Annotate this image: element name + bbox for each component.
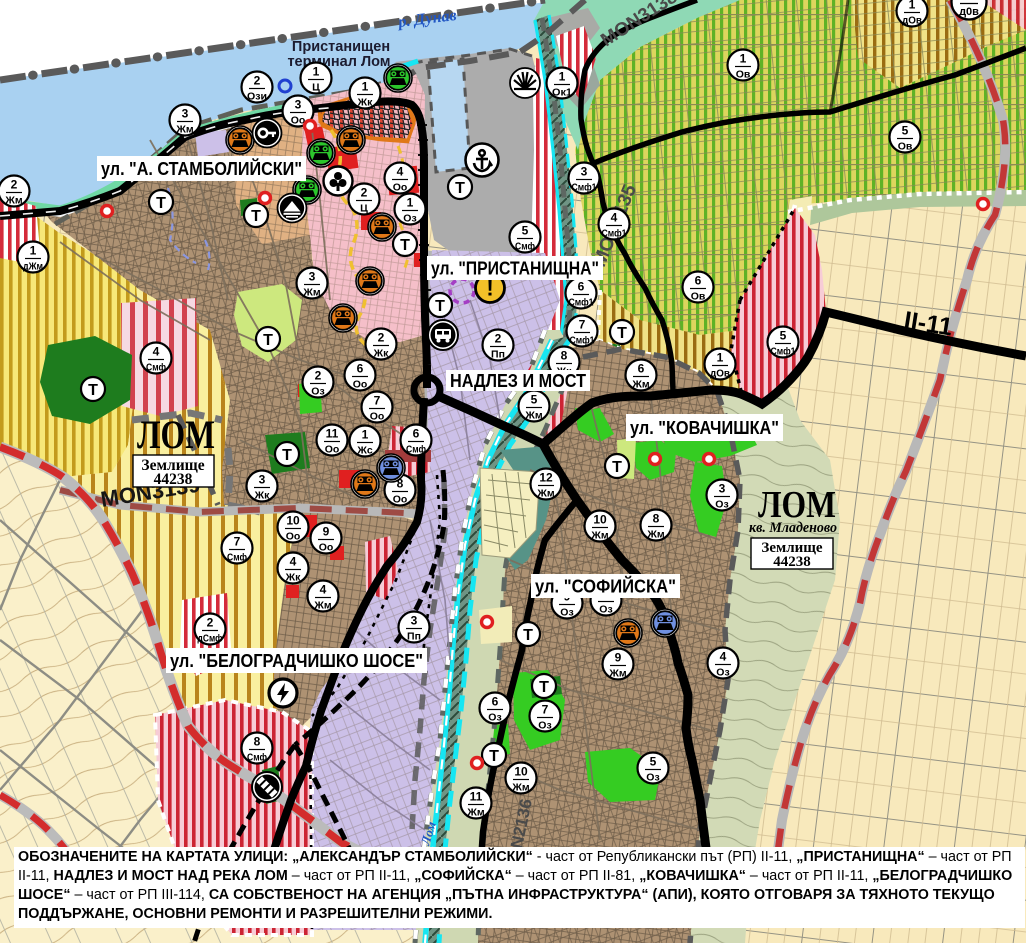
svg-text:Жм: Жм (590, 530, 608, 542)
svg-text:Оз: Оз (311, 386, 324, 398)
svg-text:2: 2 (495, 332, 502, 346)
svg-text:6: 6 (357, 362, 364, 376)
svg-text:1: 1 (362, 80, 369, 94)
svg-text:Пп: Пп (407, 631, 421, 643)
svg-text:7: 7 (579, 318, 586, 332)
svg-text:7: 7 (374, 394, 381, 408)
svg-text:Смф1: Смф1 (569, 297, 594, 309)
svg-text:9: 9 (323, 525, 330, 539)
svg-text:Оо: Оо (393, 494, 408, 506)
svg-text:дОв: дОв (902, 15, 923, 27)
svg-text:44238: 44238 (154, 471, 193, 488)
svg-text:T: T (523, 627, 533, 644)
svg-text:10: 10 (514, 765, 528, 779)
svg-text:Ов: Ов (736, 69, 751, 81)
svg-text:4: 4 (611, 211, 618, 225)
svg-text:Оо: Оо (353, 379, 368, 391)
svg-text:5: 5 (531, 393, 538, 407)
svg-text:T: T (435, 298, 445, 315)
svg-text:3: 3 (182, 107, 189, 121)
svg-text:Смф: Смф (227, 552, 247, 564)
svg-text:T: T (400, 237, 410, 254)
svg-text:Оо: Оо (286, 531, 301, 543)
svg-text:Оз: Оз (538, 720, 551, 732)
svg-text:Ц: Ц (312, 82, 320, 94)
svg-text:дЖм: дЖм (23, 261, 43, 273)
svg-text:Жм: Жм (608, 668, 626, 680)
svg-text:ул. "ПРИСТАНИЩНА": ул. "ПРИСТАНИЩНА" (431, 257, 599, 278)
svg-text:Смф: Смф (146, 362, 166, 374)
svg-text:10: 10 (286, 514, 300, 528)
svg-text:д0в: д0в (959, 6, 979, 18)
svg-text:Оо: Оо (319, 542, 334, 554)
svg-text:2: 2 (11, 178, 18, 192)
svg-text:Жм: Жм (302, 287, 320, 299)
svg-text:6: 6 (578, 280, 585, 294)
svg-text:T: T (455, 180, 465, 197)
svg-text:Ок1: Ок1 (552, 87, 572, 99)
svg-text:Жм: Жм (524, 410, 542, 422)
svg-text:Жм: Жм (466, 807, 484, 819)
svg-text:T: T (263, 332, 273, 349)
svg-text:2: 2 (254, 74, 261, 88)
svg-text:12: 12 (539, 471, 553, 485)
svg-text:4: 4 (290, 555, 297, 569)
svg-text:6: 6 (413, 427, 420, 441)
svg-text:5: 5 (650, 755, 657, 769)
svg-text:Жк: Жк (254, 490, 270, 502)
svg-text:5: 5 (780, 329, 787, 343)
svg-text:НАДЛЕЗ И МОСТ: НАДЛЕЗ И МОСТ (450, 371, 586, 391)
svg-text:кв. Младеново: кв. Младеново (749, 520, 837, 536)
svg-text:4: 4 (320, 583, 327, 597)
svg-text:Жм: Жм (313, 600, 331, 612)
svg-text:Оз: Оз (599, 604, 612, 616)
svg-text:1: 1 (30, 244, 37, 258)
svg-text:T: T (489, 748, 499, 765)
svg-text:T: T (251, 208, 261, 225)
svg-text:ул. "СОФИЙСКА": ул. "СОФИЙСКА" (535, 575, 676, 596)
svg-text:1: 1 (740, 52, 747, 66)
svg-text:9: 9 (615, 651, 622, 665)
svg-text:3: 3 (295, 98, 302, 112)
svg-text:Смф: Смф (406, 444, 426, 456)
svg-text:1: 1 (313, 65, 320, 79)
svg-text:Жм: Жм (511, 782, 529, 794)
svg-text:Жс: Жс (356, 445, 372, 457)
svg-text:8: 8 (653, 512, 660, 526)
svg-text:2: 2 (378, 331, 385, 345)
svg-text:Оз: Оз (646, 772, 659, 784)
svg-text:Ов: Ов (691, 291, 706, 303)
svg-text:дСмф: дСмф (198, 633, 223, 645)
svg-text:Пристанищен: Пристанищен (292, 39, 390, 55)
svg-text:2: 2 (315, 369, 322, 383)
svg-text:1: 1 (559, 70, 566, 84)
svg-text:Смф: Смф (247, 752, 267, 764)
svg-text:Ов: Ов (898, 141, 913, 153)
svg-text:1: 1 (909, 0, 916, 12)
svg-text:Смф1: Смф1 (602, 228, 627, 240)
svg-text:10: 10 (593, 513, 607, 527)
svg-text:6: 6 (492, 695, 499, 709)
svg-text:ул. "БЕЛОГРАДЧИШКО ШОСЕ": ул. "БЕЛОГРАДЧИШКО ШОСЕ" (170, 650, 423, 671)
svg-text:Жк: Жк (373, 348, 389, 360)
svg-text:Жм: Жм (646, 529, 664, 541)
svg-text:4: 4 (153, 345, 160, 359)
svg-text:дОв: дОв (710, 368, 731, 380)
svg-text:Оз: Оз (716, 667, 729, 679)
svg-text:6: 6 (695, 274, 702, 288)
svg-text:44238: 44238 (773, 554, 811, 570)
svg-text:8: 8 (561, 349, 568, 363)
svg-text:11: 11 (470, 790, 483, 804)
svg-text:терминал Лом: терминал Лом (287, 54, 390, 70)
svg-text:Ц: Ц (360, 203, 368, 215)
svg-text:Жм: Жм (536, 488, 554, 500)
svg-text:T: T (88, 382, 98, 399)
svg-text:8: 8 (254, 735, 261, 749)
svg-text:1: 1 (362, 428, 369, 442)
svg-text:Жм: Жм (175, 124, 193, 136)
svg-text:Оз: Оз (715, 499, 728, 511)
svg-text:3: 3 (719, 482, 726, 496)
svg-text:Смф1: Смф1 (771, 346, 796, 358)
svg-text:7: 7 (234, 535, 241, 549)
svg-text:1: 1 (407, 196, 414, 210)
svg-text:5: 5 (522, 224, 529, 238)
svg-text:Жк: Жк (285, 572, 301, 584)
svg-text:Ози: Ози (247, 91, 267, 103)
svg-text:T: T (617, 325, 627, 342)
svg-text:4: 4 (720, 650, 727, 664)
svg-text:3: 3 (309, 270, 316, 284)
svg-text:Оо: Оо (393, 182, 408, 194)
svg-text:4: 4 (397, 165, 404, 179)
svg-text:Жм: Жм (631, 379, 649, 391)
svg-text:T: T (282, 447, 292, 464)
svg-text:Жм: Жм (4, 195, 22, 207)
svg-text:2: 2 (361, 186, 368, 200)
svg-text:11: 11 (326, 427, 339, 441)
svg-text:Оо: Оо (370, 411, 385, 423)
svg-text:2: 2 (207, 616, 214, 630)
svg-text:7: 7 (542, 703, 549, 717)
svg-text:6: 6 (638, 362, 645, 376)
svg-text:1: 1 (717, 351, 724, 365)
svg-text:3: 3 (581, 165, 588, 179)
svg-text:Смф1: Смф1 (570, 335, 595, 347)
svg-text:T: T (156, 195, 166, 212)
svg-text:Смф: Смф (515, 241, 535, 253)
svg-text:3: 3 (411, 614, 418, 628)
svg-text:Оо: Оо (325, 444, 340, 456)
svg-text:3: 3 (259, 473, 266, 487)
svg-text:Оз: Оз (488, 712, 501, 724)
svg-text:ул. "А. СТАМБОЛИЙСКИ": ул. "А. СТАМБОЛИЙСКИ" (101, 158, 302, 179)
svg-text:T: T (539, 679, 549, 696)
svg-text:ул. "КОВАЧИШКА": ул. "КОВАЧИШКА" (630, 417, 779, 438)
svg-text:Оз: Оз (403, 213, 416, 225)
svg-text:Оз: Оз (560, 607, 573, 619)
svg-text:Пп: Пп (491, 349, 505, 361)
svg-text:Смф1: Смф1 (572, 182, 597, 194)
svg-text:Жк: Жк (357, 97, 373, 109)
svg-text:ЛОМ: ЛОМ (137, 412, 215, 457)
svg-text:T: T (612, 459, 622, 476)
svg-text:5: 5 (902, 124, 909, 138)
